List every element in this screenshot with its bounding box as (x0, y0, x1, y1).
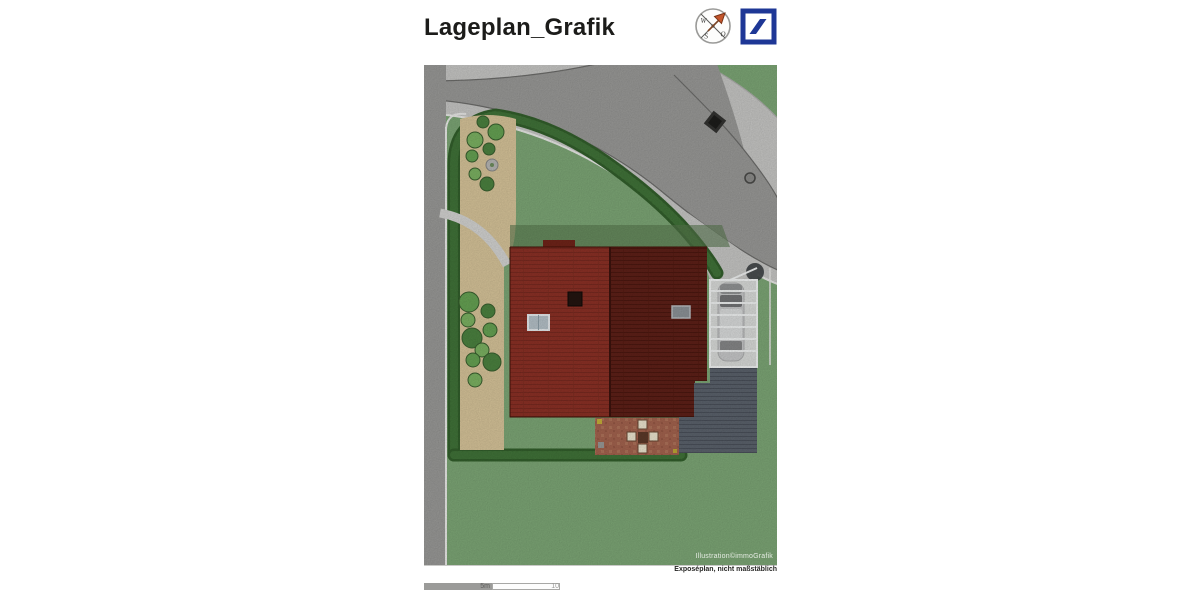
compass-east-label: O (721, 31, 726, 39)
compass-rose-icon: W S O (694, 7, 732, 45)
scale-bar: 5m 10 (424, 583, 561, 590)
scale-disclaimer: Exposéplan, nicht maßstäblich (424, 566, 777, 573)
illustration-credit: Illustration©immoGrafik (696, 553, 773, 560)
deutsche-bank-logo (740, 8, 777, 45)
texture-overlay (424, 65, 777, 565)
page-title: Lageplan_Grafik (424, 14, 615, 42)
scale-mid-label: 5m (424, 583, 490, 591)
site-plan-svg (424, 65, 777, 565)
scale-end-label: 10 (551, 583, 559, 591)
lageplan-document-page: Lageplan_Grafik W S O (0, 0, 1200, 600)
site-plan-illustration: Illustration©immoGrafik (424, 65, 777, 566)
compass-south-label: S (705, 33, 709, 41)
scale-bar-empty-segment (492, 583, 560, 590)
